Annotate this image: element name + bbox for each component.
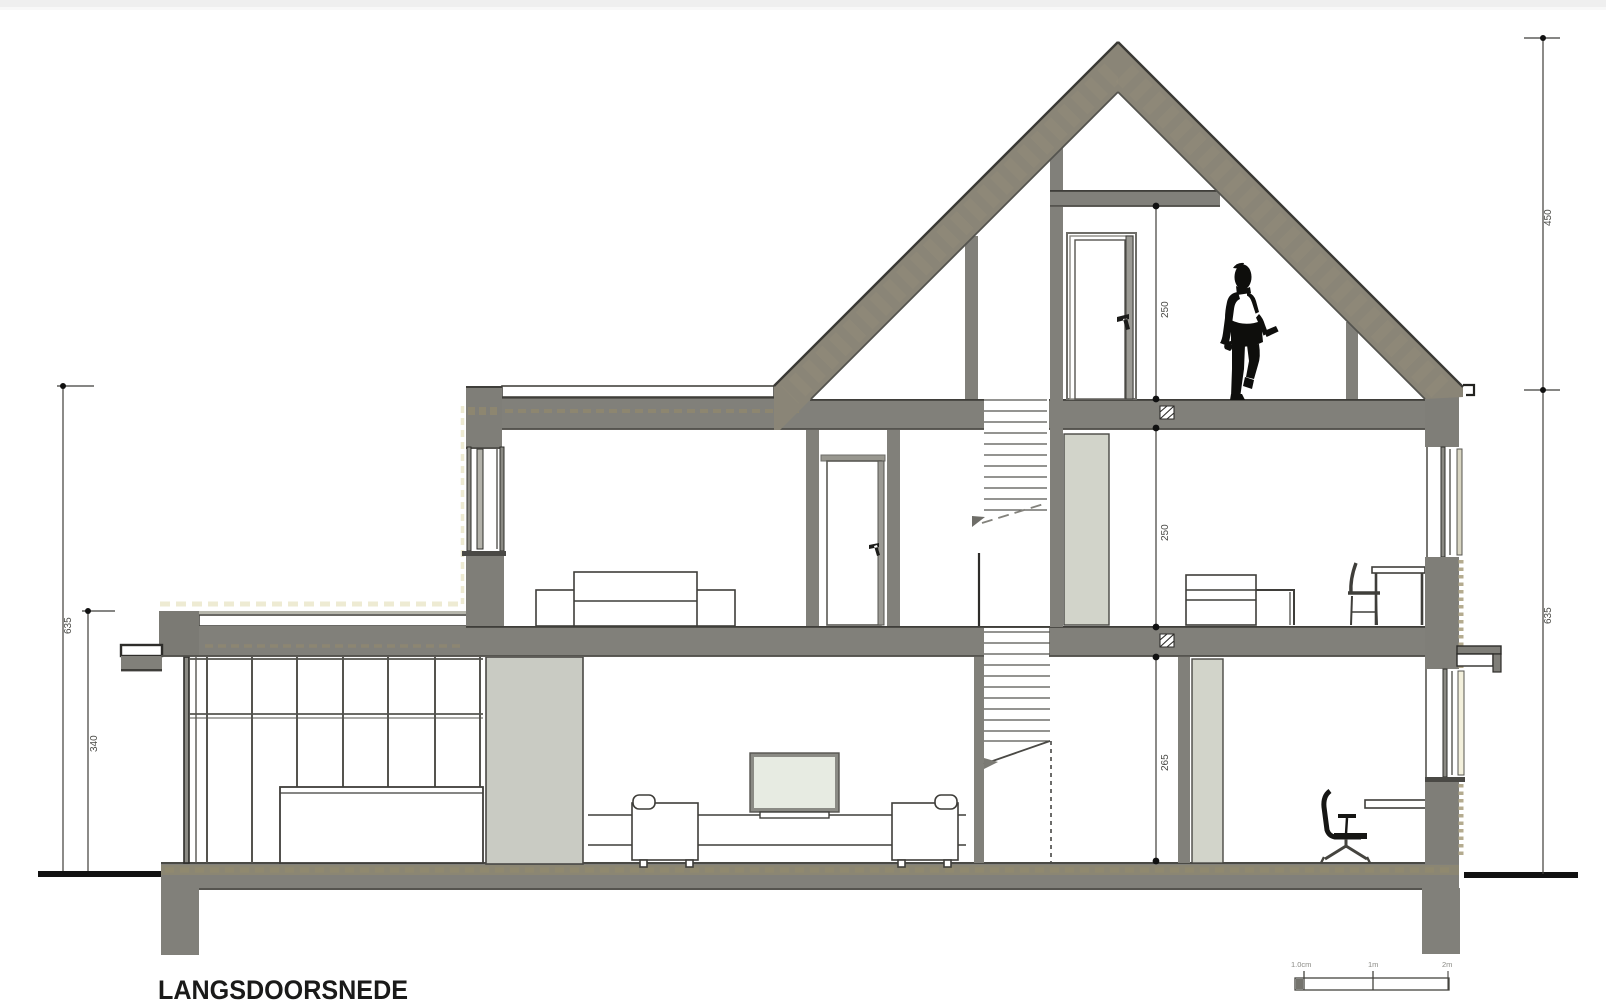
svg-text:635: 635 [63,617,74,634]
svg-text:340: 340 [89,735,100,752]
svg-text:LANGSDOORSNEDE: LANGSDOORSNEDE [158,975,408,1000]
svg-text:2m: 2m [1442,960,1452,969]
svg-text:250: 250 [1160,524,1171,541]
svg-text:250: 250 [1160,301,1171,318]
svg-text:1m: 1m [1368,960,1378,969]
svg-text:1.0cm: 1.0cm [1291,960,1311,969]
svg-text:635: 635 [1543,607,1554,624]
svg-text:265: 265 [1160,754,1171,771]
svg-text:450: 450 [1543,209,1554,226]
